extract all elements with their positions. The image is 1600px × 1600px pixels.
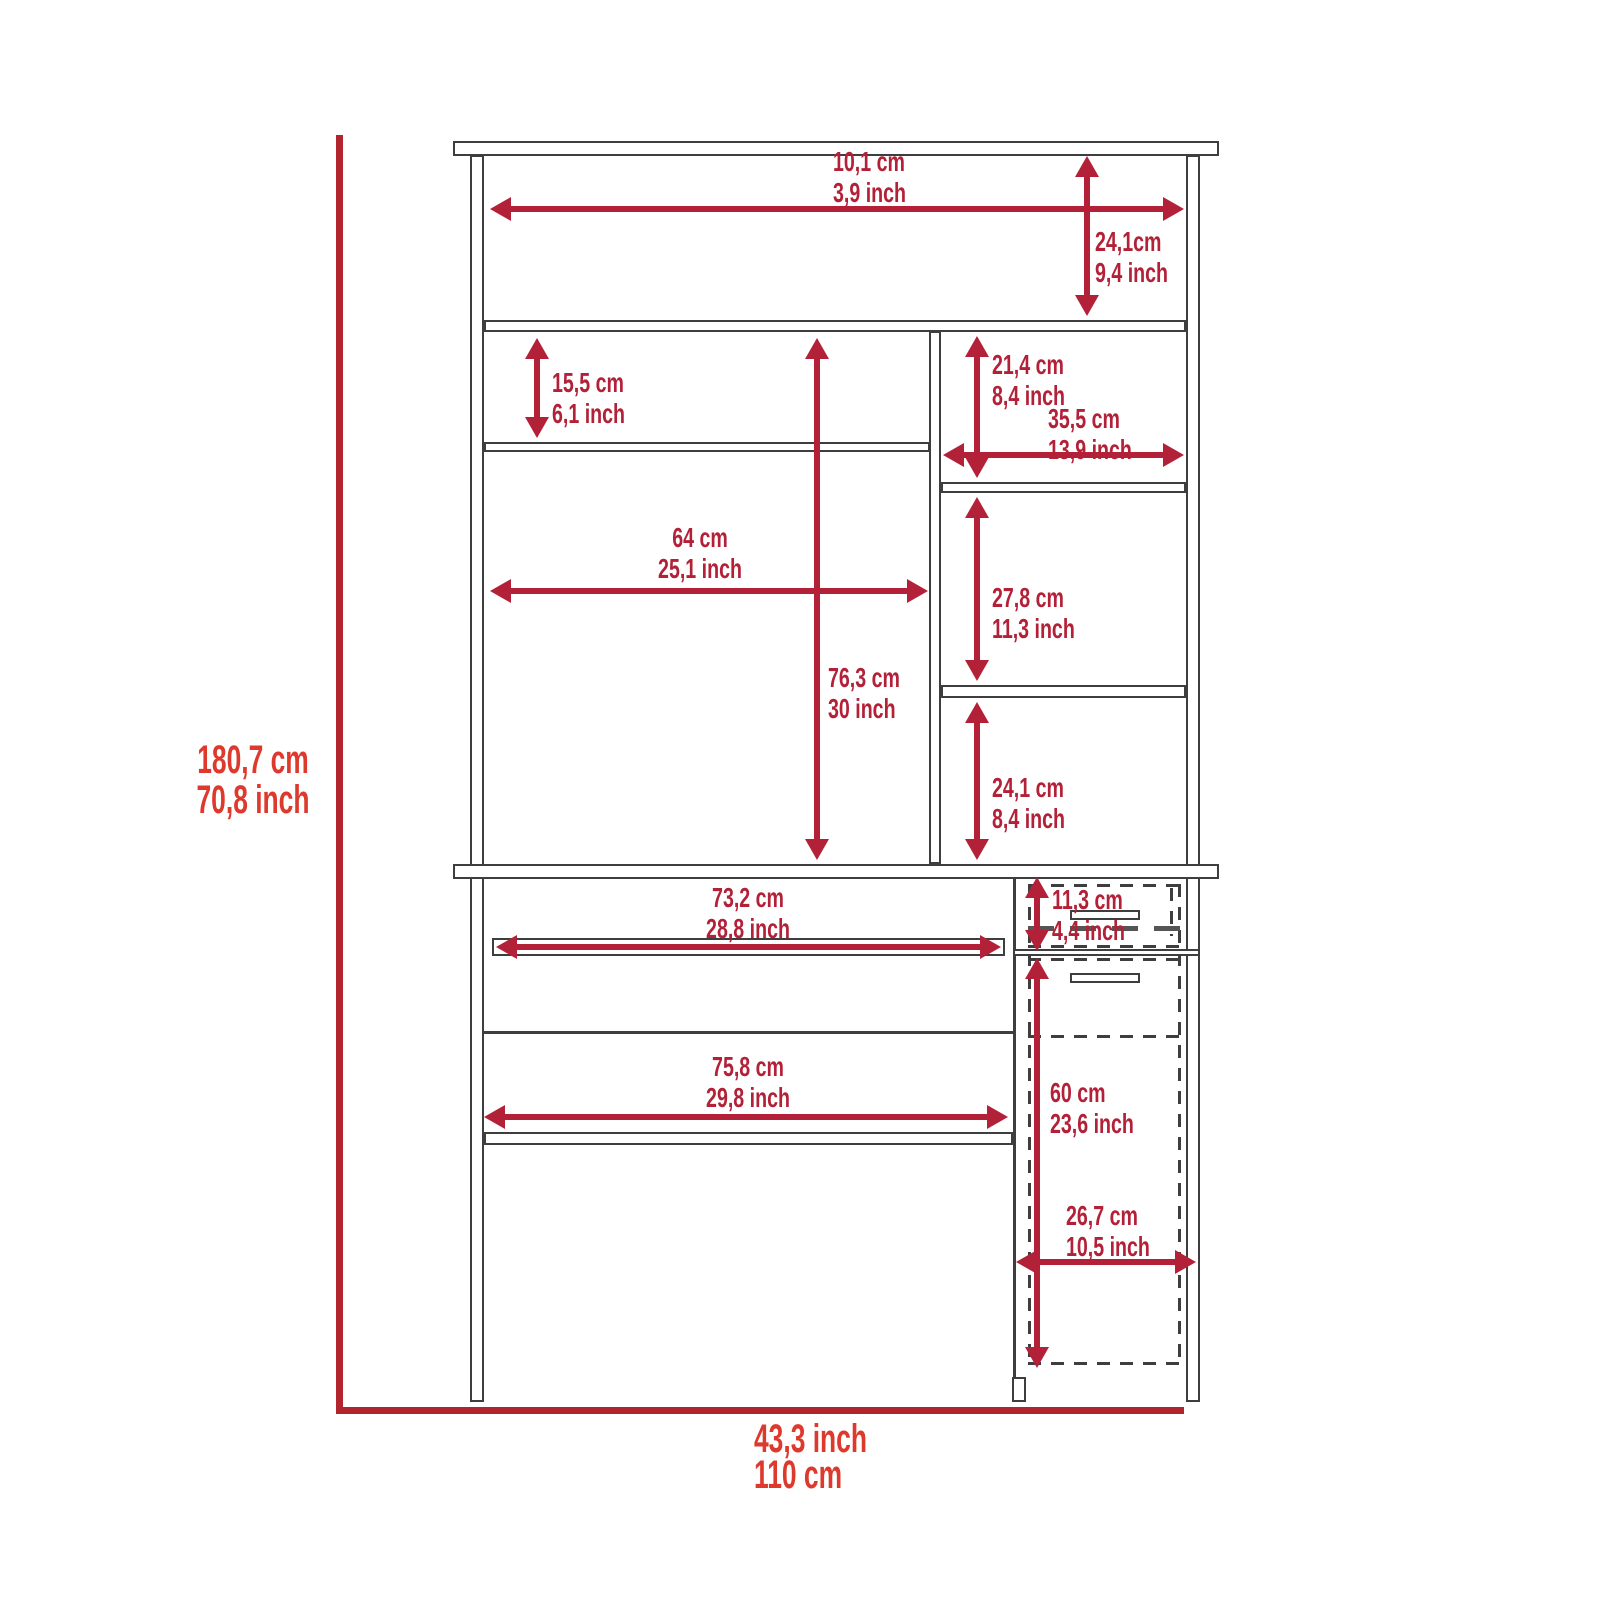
dim-label-left-cubby-height: 15,5 cm 6,1 inch — [552, 367, 625, 429]
arrow-shaft — [510, 944, 987, 950]
arrow-right-head — [987, 1105, 1008, 1129]
drawer-side-dashed-corner — [1170, 888, 1173, 936]
arrow-down-head — [965, 660, 989, 681]
cabinet-inner-dashed-line — [1028, 1035, 1180, 1038]
value-metric: 24,1 cm — [992, 772, 1065, 803]
cabinet-dashed-bottom — [1028, 1362, 1180, 1365]
value-imperial: 13,9 inch — [1048, 434, 1132, 465]
door-top-dashed-line — [1028, 958, 1180, 961]
value-imperial: 3,9 inch — [833, 177, 906, 208]
value-metric: 180,7 cm — [197, 740, 310, 780]
arrow-down-head — [805, 839, 829, 860]
left-side-panel — [470, 155, 484, 1402]
value-imperial: 10,5 inch — [1066, 1231, 1150, 1262]
value-metric: 35,5 cm — [1048, 403, 1132, 434]
value-metric: 21,4 cm — [992, 349, 1065, 380]
desk-top-board — [453, 864, 1219, 879]
value-imperial: 9,4 inch — [1095, 257, 1168, 288]
arrow-shaft — [814, 352, 820, 846]
dim-label-cabinet-width: 26,7 cm 10,5 inch — [1066, 1200, 1150, 1262]
value-metric: 64 cm — [658, 522, 742, 553]
dim-label-right-top-cubby-height: 21,4 cm 8,4 inch — [992, 349, 1065, 411]
dim-label-right-section-width: 35,5 cm 13,9 inch — [1048, 403, 1132, 465]
cabinet-left-leg — [1012, 1377, 1026, 1402]
arrow-right-head — [980, 935, 1001, 959]
value-metric: 26,7 cm — [1066, 1200, 1150, 1231]
dim-arrow-cabinet-height — [1025, 958, 1049, 1368]
value-imperial: 29,8 inch — [706, 1082, 790, 1113]
dim-label-desk-opening-width: 75,8 cm 29,8 inch — [706, 1051, 790, 1113]
value-imperial: 8,4 inch — [992, 803, 1065, 834]
arrow-shaft — [534, 352, 540, 424]
value-imperial: 11,3 inch — [992, 613, 1075, 644]
value-imperial: 4,4 inch — [1052, 915, 1125, 946]
arrow-shaft — [974, 511, 980, 667]
dim-arrow-hutch-interior-height — [805, 338, 829, 860]
hutch-left-sub-shelf — [484, 442, 930, 452]
hutch-center-divider — [929, 331, 941, 864]
dim-label-keyboard-tray-width: 73,2 cm 28,8 inch — [706, 882, 790, 944]
value-imperial: 25,1 inch — [658, 553, 742, 584]
desk-back-edge-line — [484, 1031, 1013, 1034]
overall-height-label: 180,7 cm 70,8 inch — [197, 740, 310, 820]
right-side-panel — [1186, 155, 1200, 1402]
arrow-right-head — [907, 579, 928, 603]
value-imperial: 28,8 inch — [706, 913, 790, 944]
value-metric: 76,3 cm — [828, 662, 900, 693]
arrow-shaft — [504, 588, 914, 594]
cabinet-dashed-right — [1178, 884, 1181, 1364]
dim-label-top-cubby-height: 24,1cm 9,4 inch — [1095, 226, 1168, 288]
hutch-right-shelf-upper — [941, 482, 1186, 493]
arrow-down-head — [1025, 930, 1049, 951]
value-imperial: 43,3 inch — [754, 1421, 867, 1457]
dim-label-right-bottom-cubby-height: 24,1 cm 8,4 inch — [992, 772, 1065, 834]
value-metric: 110 cm — [754, 1457, 867, 1493]
desk-stretcher-shelf — [484, 1132, 1013, 1145]
arrow-shaft — [1034, 972, 1040, 1354]
arrow-down-head — [1025, 1347, 1049, 1368]
value-imperial: 6,1 inch — [552, 398, 625, 429]
arrow-down-head — [1075, 295, 1099, 316]
dim-arrow-right-bottom-cubby-height — [965, 702, 989, 860]
overall-width-line — [336, 1407, 1184, 1414]
arrow-shaft — [974, 716, 980, 846]
dim-label-hutch-interior-height: 76,3 cm 30 inch — [828, 662, 900, 724]
value-metric: 60 cm — [1050, 1077, 1134, 1108]
overall-height-line — [336, 135, 343, 1414]
door-handle — [1070, 973, 1140, 983]
dim-arrow-drawer-height — [1025, 877, 1049, 951]
dim-arrow-left-cubby-height — [525, 338, 549, 438]
arrow-right-head — [1175, 1250, 1196, 1274]
arrow-right-head — [1163, 197, 1184, 221]
value-metric: 11,3 cm — [1052, 884, 1125, 915]
dim-arrow-right-middle-cubby-height — [965, 497, 989, 681]
arrow-down-head — [965, 839, 989, 860]
value-metric: 15,5 cm — [552, 367, 625, 398]
value-metric: 75,8 cm — [706, 1051, 790, 1082]
dim-label-cabinet-height: 60 cm 23,6 inch — [1050, 1077, 1134, 1139]
arrow-down-head — [525, 417, 549, 438]
dim-label-drawer-height: 11,3 cm 4,4 inch — [1052, 884, 1125, 946]
overall-width-label: 43,3 inch 110 cm — [754, 1421, 867, 1493]
value-imperial: 70,8 inch — [197, 780, 310, 820]
dim-label-left-section-width: 64 cm 25,1 inch — [658, 522, 742, 584]
dim-label-hutch-top-width: 10,1 cm 3,9 inch — [833, 146, 906, 208]
hutch-full-shelf — [484, 320, 1186, 332]
arrow-shaft — [498, 1114, 994, 1120]
hutch-right-shelf-lower — [941, 685, 1186, 698]
value-metric: 27,8 cm — [992, 582, 1075, 613]
value-imperial: 23,6 inch — [1050, 1108, 1134, 1139]
dim-label-right-middle-cubby-height: 27,8 cm 11,3 inch — [992, 582, 1075, 644]
value-imperial: 30 inch — [828, 693, 900, 724]
furniture-dimension-diagram: 10,1 cm 3,9 inch 24,1cm 9,4 inch 15,5 cm… — [0, 0, 1600, 1600]
value-metric: 73,2 cm — [706, 882, 790, 913]
arrow-right-head — [1163, 443, 1184, 467]
value-metric: 24,1cm — [1095, 226, 1168, 257]
arrow-shaft — [1084, 170, 1090, 302]
value-metric: 10,1 cm — [833, 146, 906, 177]
